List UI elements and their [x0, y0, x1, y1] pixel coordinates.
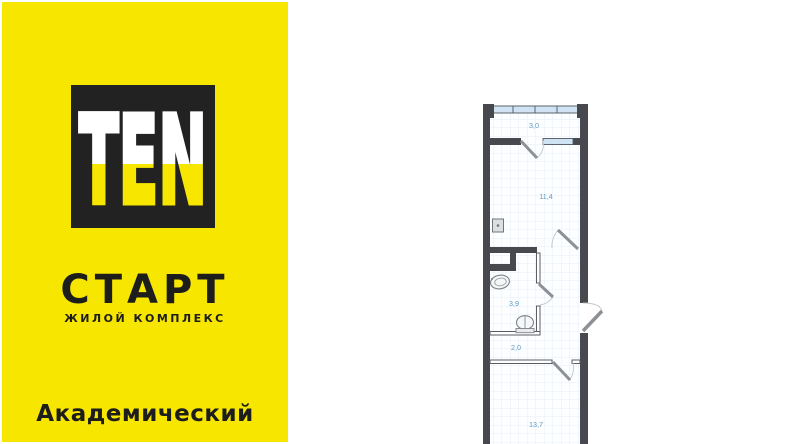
floor-plan: 3,0 11,4 3,9 2,0 13,7 — [475, 98, 615, 444]
project-subtitle: ЖИЛОЙ КОМПЛЕКС — [2, 312, 288, 325]
area-label-loggia: 3,0 — [529, 121, 539, 130]
electrical-panel-icon — [493, 219, 504, 232]
listing-image: TEN СТАРТ ЖИЛОЙ КОМПЛЕКС Академический — [0, 0, 800, 444]
brand-banner: TEN СТАРТ ЖИЛОЙ КОМПЛЕКС Академический — [2, 2, 288, 442]
entrance-door — [583, 311, 602, 331]
area-label-room-main: 13,7 — [529, 420, 543, 429]
room-window — [543, 139, 573, 145]
area-label-hallway: 2,0 — [511, 343, 521, 352]
loggia-window — [492, 106, 578, 113]
location-label: Академический — [2, 401, 288, 429]
toilet-icon — [516, 316, 534, 333]
project-name: СТАРТ — [2, 270, 288, 310]
ten-logo-text: TEN — [79, 90, 207, 228]
area-label-room: 11,4 — [539, 192, 552, 201]
ten-logo: TEN — [71, 85, 215, 228]
area-label-bathroom: 3,9 — [509, 299, 519, 308]
